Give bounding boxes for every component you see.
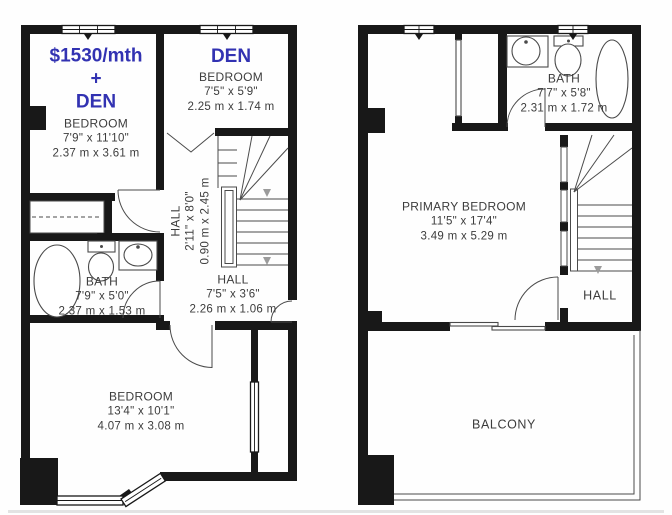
room-dim-ft: 7'5" x 3'6" — [190, 288, 277, 303]
room-name: BALCONY — [472, 418, 536, 433]
room-name: BEDROOM — [98, 390, 185, 405]
stair-direction-arrow — [263, 189, 271, 197]
room-dim-ft: 7'9" x 5'0" — [59, 290, 146, 305]
room-label-primary-bedroom: PRIMARY BEDROOM 11'5" x 17'4" 3.49 m x 5… — [402, 200, 526, 245]
sink-icon — [119, 241, 157, 270]
room-dim-ft: 13'4" x 10'1" — [98, 405, 185, 420]
room-dim-m: 2.26 m x 1.06 m — [190, 303, 277, 318]
room-name: BATH — [521, 72, 608, 87]
price-label: $1530/mth + DEN — [50, 45, 143, 114]
room-label-hall-left: HALL 7'5" x 3'6" 2.26 m x 1.06 m — [190, 273, 277, 318]
price-plus: + — [50, 68, 143, 91]
room-name: HALL — [583, 289, 617, 304]
price-den: DEN — [50, 91, 143, 114]
room-dim-m: 4.07 m x 3.08 m — [98, 420, 185, 435]
room-label-hall-right: HALL — [583, 289, 617, 304]
room-name: HALL — [169, 178, 184, 265]
stair-direction-arrow — [263, 257, 271, 265]
sliding-door-icon — [450, 323, 545, 331]
room-name: BEDROOM — [188, 70, 275, 85]
sink-icon — [507, 36, 548, 67]
left-unit-stairs — [218, 136, 288, 267]
room-label-bedroom-top-left: BEDROOM 7'9" x 11'10" 2.37 m x 3.61 m — [53, 117, 140, 162]
stair-direction-arrow — [594, 266, 602, 274]
bifold-door-icon — [167, 133, 214, 152]
toilet-icon — [554, 36, 583, 76]
den-title: DEN — [188, 47, 275, 67]
room-label-balcony: BALCONY — [472, 418, 536, 433]
room-dim-m: 2.25 m x 1.74 m — [188, 100, 275, 115]
room-name: PRIMARY BEDROOM — [402, 200, 526, 215]
room-dim-m: 0.90 m x 2.45 m — [199, 178, 214, 265]
room-dim-ft: 7'7" x 5'8" — [521, 87, 608, 102]
room-dim-m: 3.49 m x 5.29 m — [402, 230, 526, 245]
floorplan-canvas: $1530/mth + DEN BEDROOM 7'9" x 11'10" 2.… — [0, 0, 672, 515]
price-amount: $1530/mth — [50, 45, 143, 68]
room-dim-m: 2.37 m x 3.61 m — [53, 147, 140, 162]
room-label-bedroom-bottom: BEDROOM 13'4" x 10'1" 4.07 m x 3.08 m — [98, 390, 185, 435]
room-name: BEDROOM — [53, 117, 140, 132]
room-dim-m: 2.31 m x 1.72 m — [521, 102, 608, 117]
right-unit-stairs — [571, 135, 633, 274]
left-unit-closet — [30, 201, 104, 233]
room-dim-ft: 2'11" x 8'0" — [184, 178, 199, 265]
room-label-den: DEN BEDROOM 7'5" x 5'9" 2.25 m x 1.74 m — [188, 47, 275, 115]
room-label-hall-stairs: HALL 2'11" x 8'0" 0.90 m x 2.45 m — [169, 178, 214, 265]
balcony-outline — [394, 330, 640, 500]
room-dim-ft: 11'5" x 17'4" — [402, 215, 526, 230]
page-edge-shadow — [8, 510, 664, 513]
room-dim-ft: 7'9" x 11'10" — [53, 132, 140, 147]
right-unit-railing — [561, 147, 567, 266]
right-unit-closet — [455, 34, 462, 124]
room-label-bath-left: BATH 7'9" x 5'0" 2.37 m x 1.53 m — [59, 275, 146, 320]
room-dim-m: 2.37 m x 1.53 m — [59, 305, 146, 320]
closet-door-icon — [456, 40, 461, 116]
room-label-bath-right: BATH 7'7" x 5'8" 2.31 m x 1.72 m — [521, 72, 608, 117]
room-name: BATH — [59, 275, 146, 290]
room-name: HALL — [190, 273, 277, 288]
room-dim-ft: 7'5" x 5'9" — [188, 85, 275, 100]
